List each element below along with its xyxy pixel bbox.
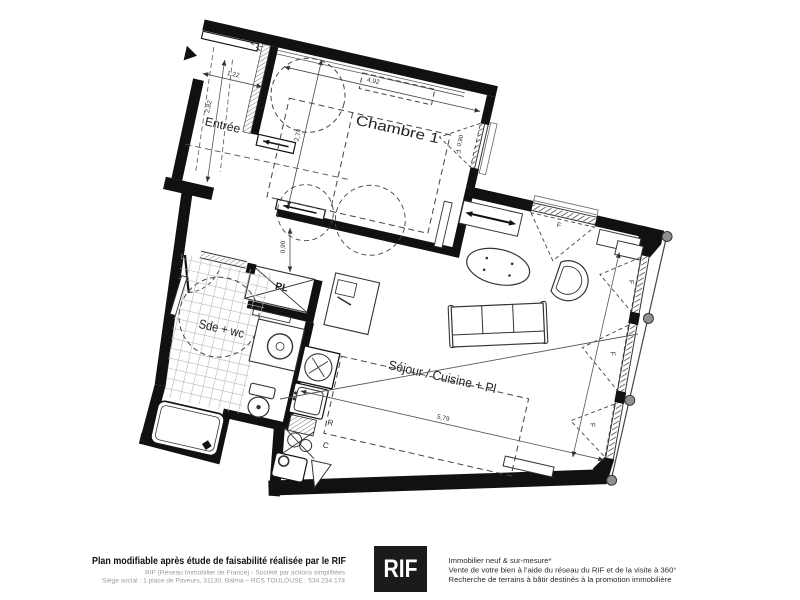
svg-text:Siège social : 1 place de Pave: Siège social : 1 place de Paveurs, 31130…	[102, 578, 345, 585]
svg-text:F: F	[627, 280, 634, 285]
svg-text:F: F	[609, 352, 616, 357]
svg-text:Vente de votre bien à l’aide d: Vente de votre bien à l’aide du réseau d…	[449, 566, 677, 575]
svg-text:F: F	[588, 423, 595, 428]
svg-text:Plan modifiable après étude de: Plan modifiable après étude de faisabili…	[92, 556, 346, 567]
svg-text:RIF (Réseau Immobilier de Fran: RIF (Réseau Immobilier de France) - Soci…	[145, 570, 346, 577]
svg-text:Immobilier neuf & sur-mesure*: Immobilier neuf & sur-mesure*	[449, 556, 552, 565]
svg-text:RIF: RIF	[384, 555, 418, 583]
svg-text:F: F	[454, 149, 461, 154]
svg-text:Recherche de terrains à bâtir: Recherche de terrains à bâtir destinés à…	[449, 575, 672, 584]
svg-text:0,90: 0,90	[280, 240, 287, 253]
